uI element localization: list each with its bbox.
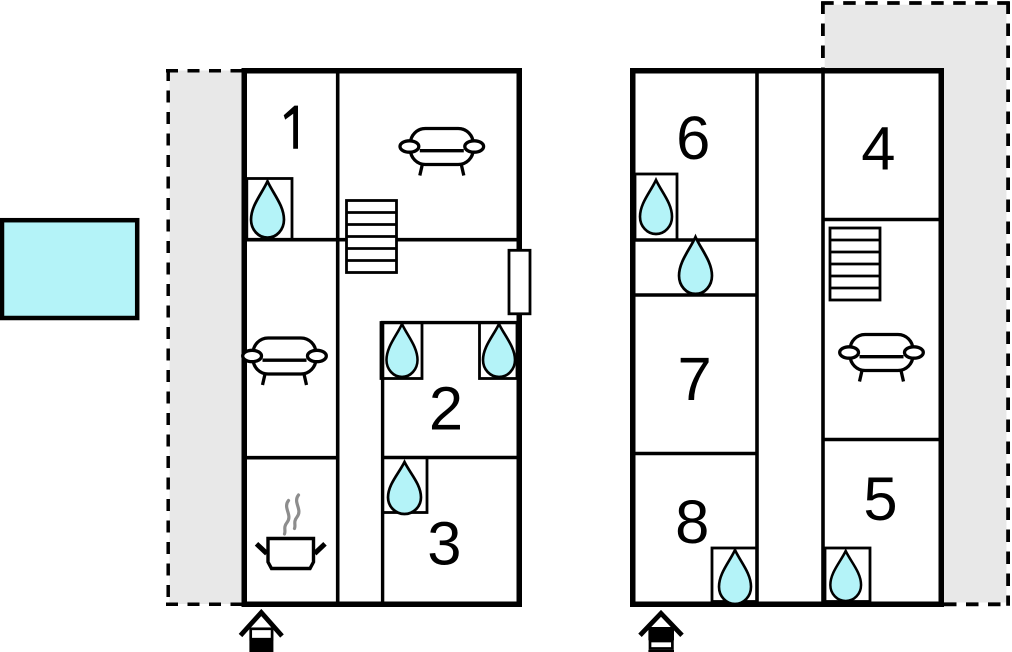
svg-text:8: 8	[675, 488, 709, 557]
svg-text:2: 2	[429, 375, 463, 444]
svg-text:6: 6	[676, 104, 710, 173]
svg-text:5: 5	[863, 465, 897, 534]
svg-text:7: 7	[677, 345, 711, 414]
svg-text:3: 3	[427, 510, 461, 579]
svg-text:4: 4	[861, 114, 895, 183]
